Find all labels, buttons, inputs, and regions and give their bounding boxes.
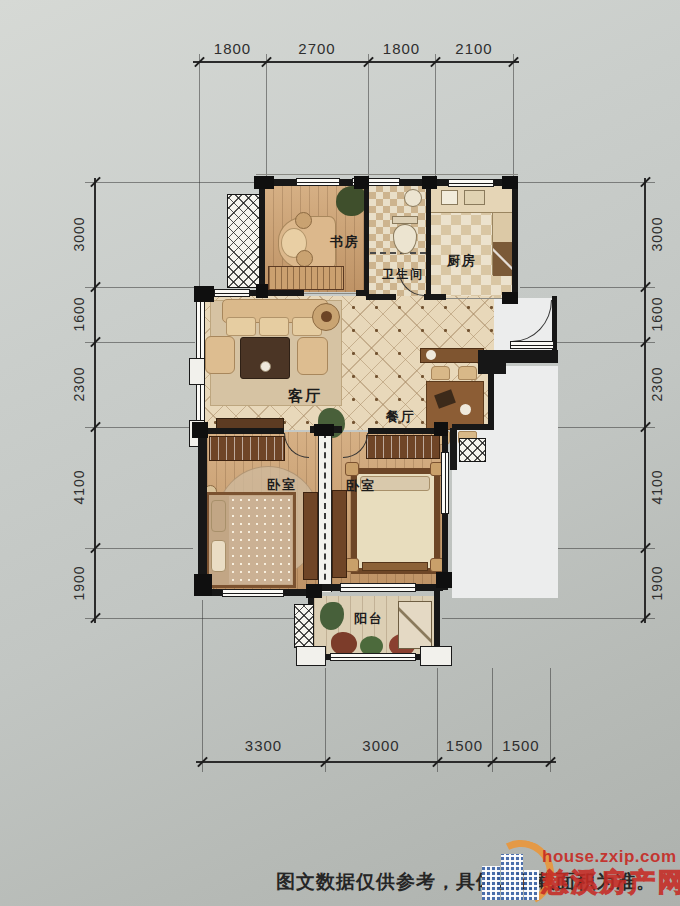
buildings-logo-icon — [501, 854, 523, 900]
wall — [198, 430, 207, 596]
bay-window — [227, 194, 260, 288]
dim-left-5: 1900 — [71, 560, 87, 606]
dimension-line-bottom — [196, 761, 556, 763]
dim-left-2: 1600 — [71, 291, 87, 337]
room-label-bedroom-left: 卧室 — [267, 476, 297, 494]
room-label-living: 客厅 — [288, 387, 322, 406]
wall-pillar — [194, 574, 212, 596]
stove — [464, 190, 485, 205]
bed-bench — [362, 562, 428, 571]
door-opening — [304, 293, 358, 294]
extension-line — [513, 54, 514, 180]
watermark-url: house.zxip.com — [542, 847, 677, 867]
pillow — [211, 540, 226, 572]
duvet — [229, 496, 292, 584]
window — [330, 653, 416, 661]
extension-line — [437, 668, 438, 772]
wall-pillar — [256, 284, 268, 298]
extension-line — [85, 342, 195, 343]
wall-pillar — [192, 422, 208, 438]
wall-pillar — [436, 572, 452, 588]
window — [441, 452, 449, 514]
sideboard-bowl — [426, 350, 436, 360]
wall-pillar — [194, 286, 214, 302]
wall — [478, 350, 558, 363]
wall-pillar — [502, 176, 518, 189]
room-label-study: 书房 — [330, 233, 360, 251]
dim-right-1: 3000 — [649, 211, 665, 257]
wardrobe — [366, 435, 440, 459]
closet — [332, 490, 347, 578]
wall-pillar — [306, 584, 322, 598]
extension-line — [266, 54, 267, 180]
window-box — [189, 358, 205, 385]
extension-line — [492, 668, 493, 772]
kitchen-sink — [441, 190, 458, 205]
wall-pillar — [434, 422, 448, 436]
buildings-logo-icon — [482, 866, 500, 900]
wall-ledge — [256, 174, 518, 175]
wall — [366, 294, 396, 300]
dim-left-4: 4100 — [71, 464, 87, 510]
room-label-bedroom-right: 卧室 — [346, 477, 376, 495]
wall — [262, 290, 304, 296]
dim-bottom-2: 3000 — [325, 737, 437, 754]
balcony-pillar — [420, 646, 452, 666]
dim-top-3: 1800 — [368, 40, 435, 57]
dim-left-1: 3000 — [71, 211, 87, 257]
teacup — [260, 361, 271, 372]
bookshelf — [268, 266, 344, 290]
wall — [488, 363, 494, 428]
room-label-balcony: 阳台 — [354, 610, 384, 628]
dimension-line-top — [193, 61, 519, 63]
dim-right-5: 1900 — [649, 560, 665, 606]
table-plate — [460, 404, 471, 415]
kitchen-opening — [446, 298, 504, 299]
guest-chair — [296, 250, 313, 267]
extension-line — [199, 54, 200, 290]
extension-line — [85, 548, 193, 549]
dim-top-4: 2100 — [435, 40, 513, 57]
armchair — [205, 336, 235, 374]
entry-sill — [510, 341, 554, 349]
wall — [512, 179, 518, 300]
watermark: house.zxip.com 慈溪房产网 — [474, 838, 680, 906]
closet — [303, 492, 318, 580]
wall-pillar — [422, 176, 437, 189]
extension-line — [85, 618, 297, 619]
room-label-bathroom: 卫生间 — [382, 266, 424, 283]
dim-left-3: 2300 — [71, 361, 87, 407]
dim-bottom-3: 1500 — [437, 737, 492, 754]
bed-post — [345, 462, 359, 476]
wall — [198, 428, 284, 434]
divider-dashes — [324, 432, 326, 590]
balcony-plant — [331, 632, 357, 655]
window — [448, 179, 494, 187]
wall — [424, 294, 446, 300]
dimension-line-right — [644, 178, 646, 623]
pillow — [211, 500, 226, 532]
bed-post — [345, 558, 359, 572]
dim-right-2: 1600 — [649, 291, 665, 337]
shower-divider — [370, 252, 426, 254]
side-table-decor — [321, 311, 332, 322]
wall-pillar — [314, 424, 334, 436]
wall-pillar — [354, 176, 369, 189]
wall — [364, 181, 369, 296]
window — [340, 583, 416, 592]
wall — [450, 428, 457, 470]
extension-line — [520, 287, 655, 288]
wall — [452, 424, 494, 430]
toilet-tank — [392, 216, 418, 224]
sofa-cushion — [259, 317, 289, 336]
window — [222, 589, 284, 597]
dim-bottom-4: 1500 — [492, 737, 550, 754]
extension-line — [518, 182, 655, 183]
floor-plan-photo: 1800 2700 1800 2100 3300 3000 1500 1500 … — [0, 0, 680, 906]
dim-top-2: 2700 — [266, 40, 368, 57]
window — [296, 178, 340, 186]
room-label-dining: 餐厅 — [386, 408, 416, 426]
wardrobe — [209, 436, 285, 461]
entry-cabinet — [459, 438, 486, 462]
balcony-side-window — [294, 604, 314, 648]
wall-pillar — [502, 292, 518, 304]
extension-line — [368, 54, 369, 180]
dining-chair — [458, 366, 477, 380]
extension-line — [325, 668, 326, 772]
dining-chair — [431, 366, 450, 380]
room-label-kitchen: 厨房 — [447, 252, 477, 270]
buildings-logo-icon — [524, 870, 539, 900]
dim-top-1: 1800 — [199, 40, 266, 57]
guest-chair — [295, 212, 312, 229]
sink — [404, 189, 422, 207]
extension-line — [85, 427, 191, 428]
sofa-cushion — [226, 317, 256, 336]
balcony-cabinet — [398, 601, 432, 649]
study-plant — [336, 186, 367, 216]
dim-right-3: 2300 — [649, 361, 665, 407]
extension-line — [550, 668, 551, 772]
fridge — [493, 242, 512, 276]
balcony-pillar — [296, 646, 326, 666]
armchair — [297, 337, 328, 375]
window — [214, 289, 250, 297]
extension-line — [435, 54, 436, 180]
dim-right-4: 4100 — [649, 464, 665, 510]
dim-bottom-1: 3300 — [202, 737, 325, 754]
coffee-table — [240, 337, 290, 379]
wall — [426, 181, 431, 300]
extension-line — [85, 287, 195, 288]
dimension-line-left — [94, 178, 96, 623]
watermark-site-name: 慈溪房产网 — [542, 865, 680, 900]
wall-pillar — [254, 176, 274, 189]
extension-line — [85, 182, 257, 183]
extension-line — [442, 618, 655, 619]
